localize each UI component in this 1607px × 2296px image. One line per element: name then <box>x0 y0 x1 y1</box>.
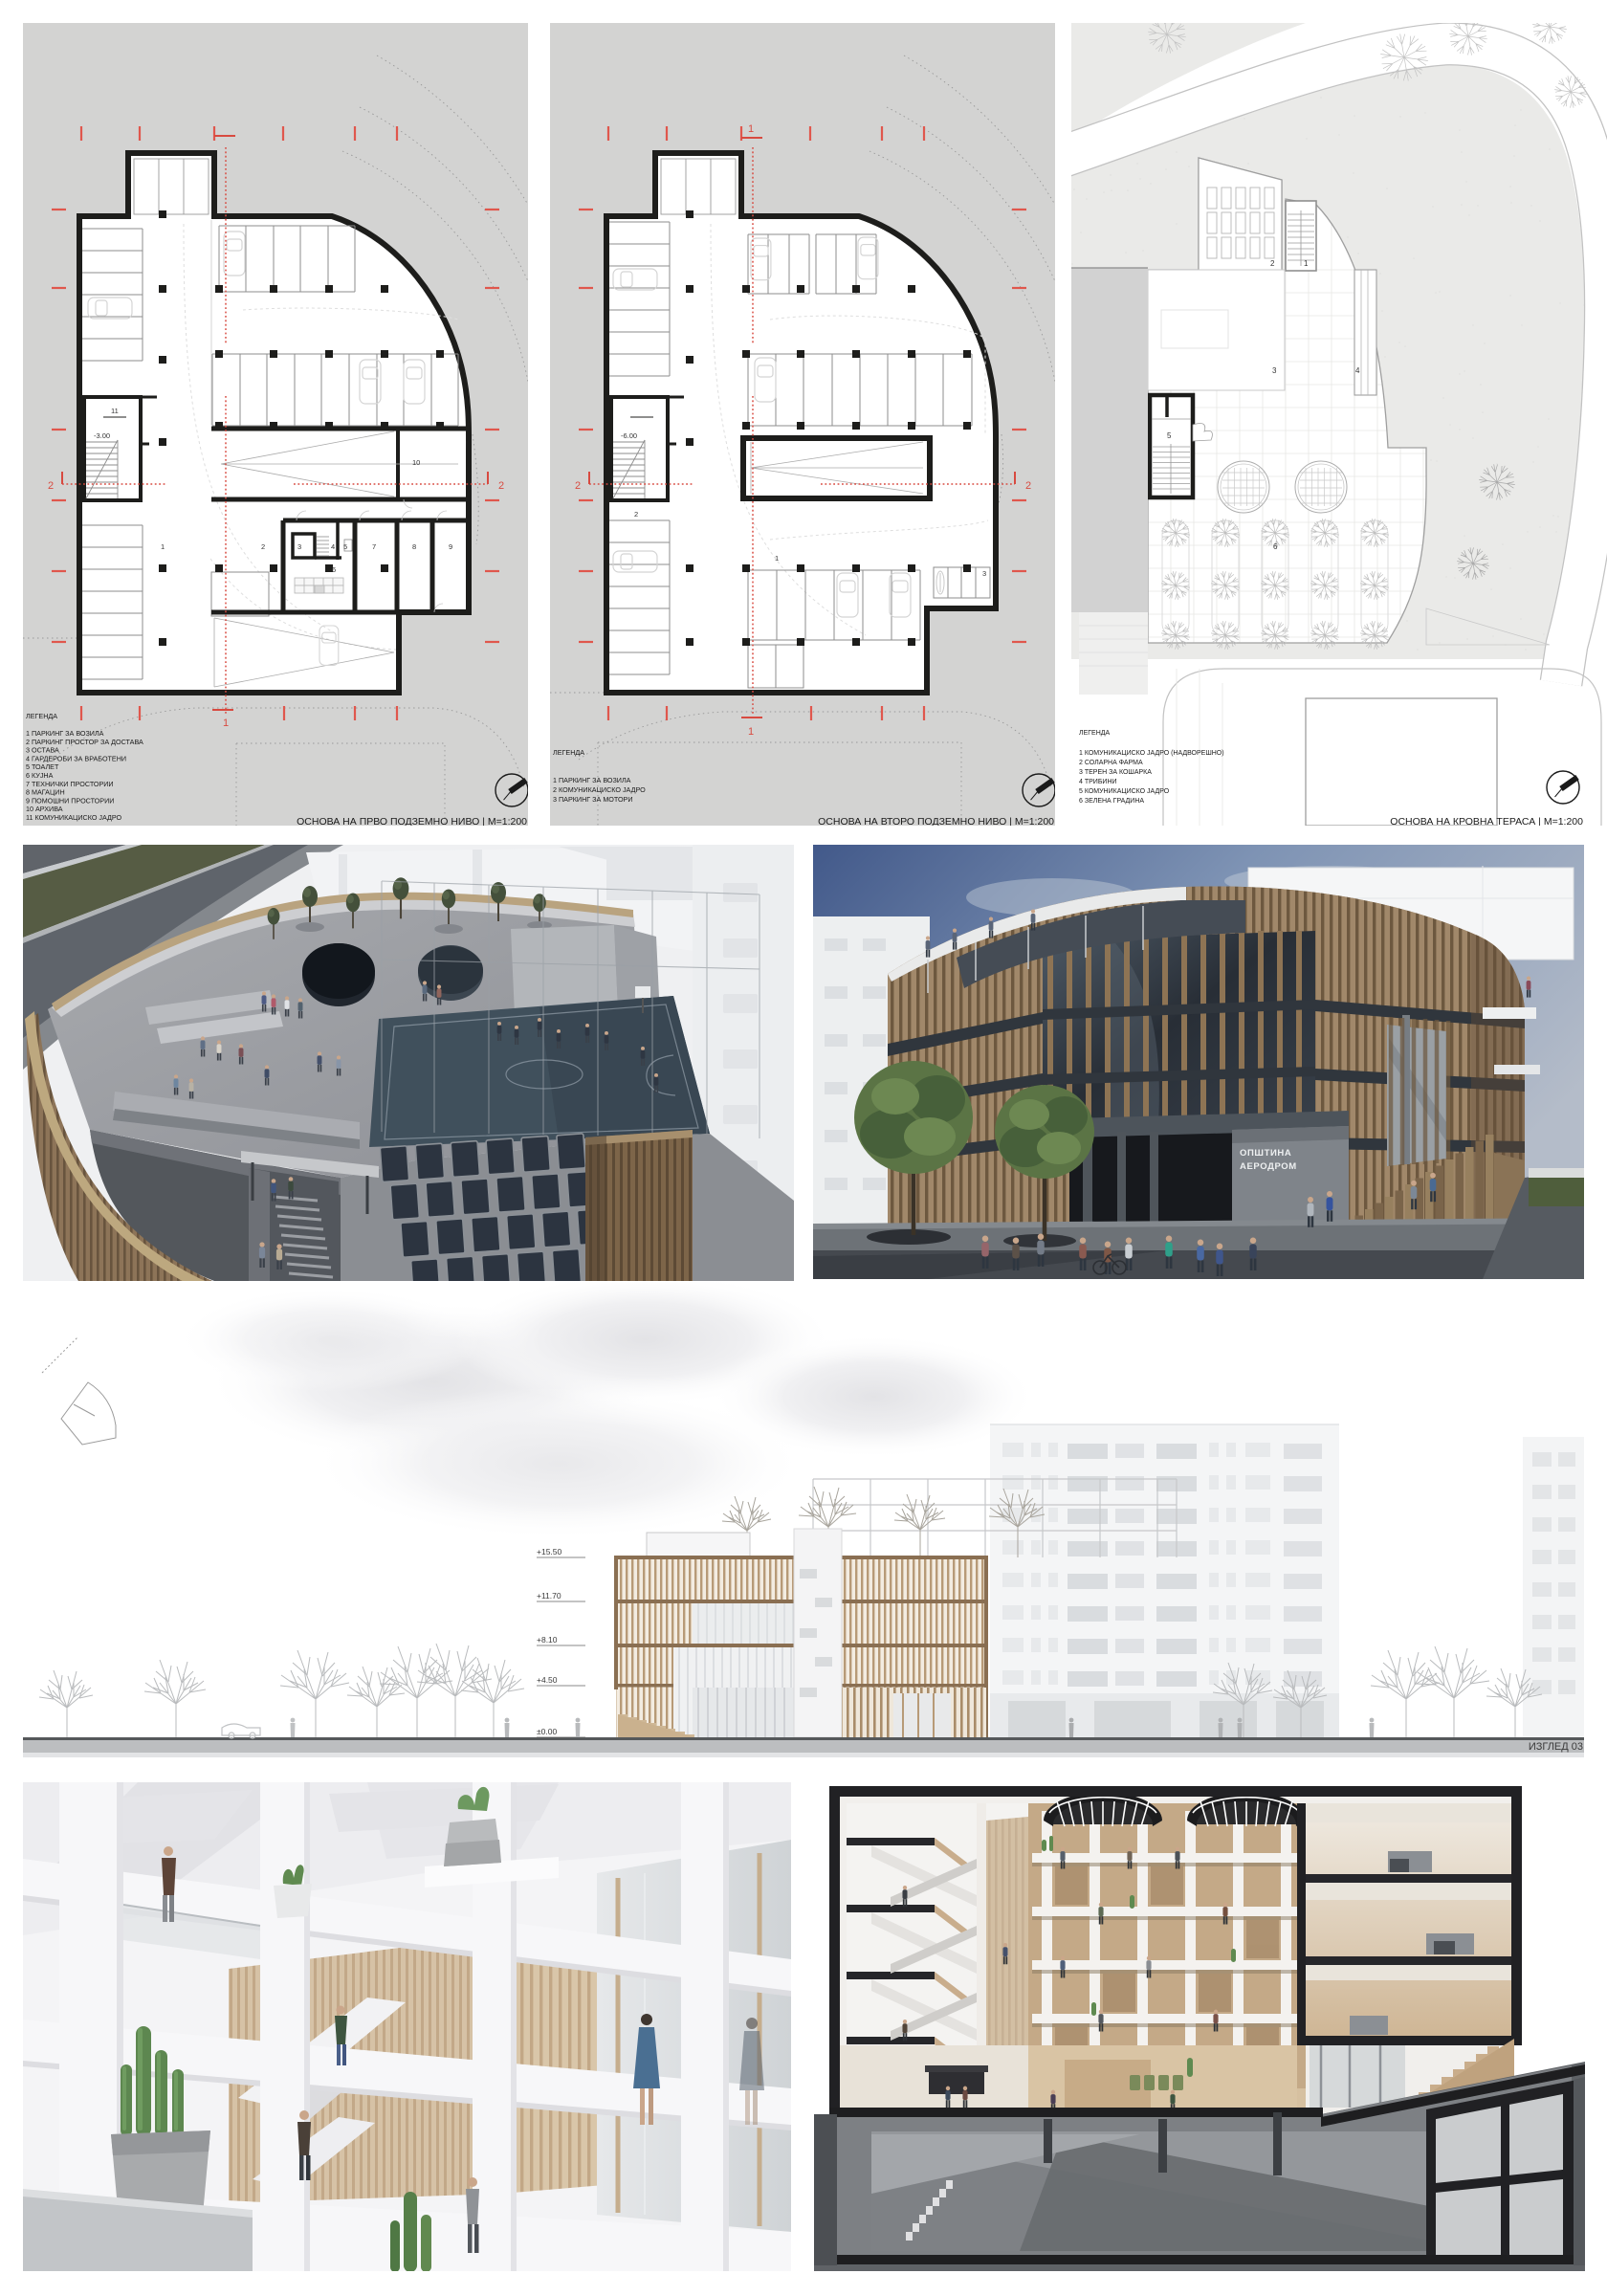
svg-text:1: 1 <box>748 123 754 135</box>
svg-text:3: 3 <box>982 569 986 578</box>
svg-text:4: 4 <box>1355 366 1360 375</box>
svg-text:2: 2 <box>575 480 581 492</box>
svg-text:6 ЗЕЛЕНА ГРАДИНА: 6 ЗЕЛЕНА ГРАДИНА <box>1079 798 1144 805</box>
svg-text:+4.50: +4.50 <box>537 1675 558 1685</box>
svg-text:8: 8 <box>412 542 416 551</box>
svg-text:ОПШТИНА: ОПШТИНА <box>1240 1148 1291 1159</box>
svg-text:2: 2 <box>498 480 504 492</box>
svg-text:ОСНОВА НА ПРВО ПОДЗЕМНО НИВО |: ОСНОВА НА ПРВО ПОДЗЕМНО НИВО | М=1:200 <box>297 816 527 826</box>
svg-text:2 КОМУНИКАЦИСКО ЈАДРО: 2 КОМУНИКАЦИСКО ЈАДРО <box>553 785 646 794</box>
svg-text:-3.00: -3.00 <box>94 431 110 440</box>
svg-text:-6.00: -6.00 <box>621 431 637 440</box>
svg-text:3: 3 <box>297 542 301 551</box>
svg-text:5: 5 <box>1167 431 1172 440</box>
svg-text:+11.70: +11.70 <box>537 1591 561 1601</box>
svg-text:1 КОМУНИКАЦИСКО ЈАДРО (НАДВОРЕ: 1 КОМУНИКАЦИСКО ЈАДРО (НАДВОРЕШНО) <box>1079 750 1224 757</box>
svg-text:3 ПАРКИНГ ЗА МОТОРИ: 3 ПАРКИНГ ЗА МОТОРИ <box>553 795 633 804</box>
svg-text:10: 10 <box>412 458 420 467</box>
svg-text:2: 2 <box>1025 480 1031 492</box>
svg-text:5 ТОАЛЕТ: 5 ТОАЛЕТ <box>26 762 59 771</box>
svg-text:7 ТЕХНИЧКИ ПРОСТОРИИ: 7 ТЕХНИЧКИ ПРОСТОРИИ <box>26 780 114 788</box>
svg-text:6: 6 <box>332 565 336 574</box>
svg-text:1: 1 <box>748 726 754 738</box>
svg-text:2 ПАРКИНГ ПРОСТОР ЗА ДОСТАВА: 2 ПАРКИНГ ПРОСТОР ЗА ДОСТАВА <box>26 738 143 746</box>
svg-text:6 КУЈНА: 6 КУЈНА <box>26 771 54 780</box>
svg-text:4 ТРИБИНИ: 4 ТРИБИНИ <box>1079 779 1117 785</box>
svg-text:ОСНОВА НА КРОВНА ТЕРАСА | М=1:: ОСНОВА НА КРОВНА ТЕРАСА | М=1:200 <box>1390 816 1583 826</box>
svg-text:1: 1 <box>775 554 779 563</box>
svg-text:2: 2 <box>48 480 54 492</box>
svg-text:5: 5 <box>343 542 347 551</box>
svg-text:±0.00: ±0.00 <box>537 1727 557 1736</box>
svg-text:9: 9 <box>449 542 452 551</box>
svg-text:8 МАГАЦИН: 8 МАГАЦИН <box>26 788 65 797</box>
svg-text:4: 4 <box>331 542 335 551</box>
svg-text:2: 2 <box>634 510 638 519</box>
svg-text:10 АРХИВА: 10 АРХИВА <box>26 805 63 813</box>
svg-text:4 ГАРДЕРОБИ ЗА ВРАБОТЕНИ: 4 ГАРДЕРОБИ ЗА ВРАБОТЕНИ <box>26 754 126 762</box>
svg-text:3 ТЕРЕН ЗА КОШАРКА: 3 ТЕРЕН ЗА КОШАРКА <box>1079 769 1152 776</box>
svg-text:5 КОМУНИКАЦИСКО ЈАДРО: 5 КОМУНИКАЦИСКО ЈАДРО <box>1079 788 1170 795</box>
svg-text:2 СОЛАРНА ФАРМА: 2 СОЛАРНА ФАРМА <box>1079 760 1143 766</box>
svg-text:ЛЕГЕНДА: ЛЕГЕНДА <box>26 712 57 720</box>
svg-text:1: 1 <box>223 717 229 729</box>
svg-text:1: 1 <box>161 542 165 551</box>
svg-text:2: 2 <box>1270 259 1275 268</box>
svg-text:1: 1 <box>1304 259 1309 268</box>
svg-text:1 ПАРКИНГ ЗА ВОЗИЛА: 1 ПАРКИНГ ЗА ВОЗИЛА <box>26 729 104 738</box>
svg-text:+15.50: +15.50 <box>537 1547 562 1556</box>
svg-text:6: 6 <box>1273 542 1278 551</box>
svg-text:ИЗГЛЕД 03: ИЗГЛЕД 03 <box>1529 1741 1583 1753</box>
svg-text:АЕРОДРОМ: АЕРОДРОМ <box>1240 1161 1297 1172</box>
svg-text:11: 11 <box>111 407 119 415</box>
svg-text:3 ОСТАВА: 3 ОСТАВА <box>26 746 59 755</box>
svg-text:3: 3 <box>1272 366 1277 375</box>
svg-text:1 ПАРКИНГ ЗА ВОЗИЛА: 1 ПАРКИНГ ЗА ВОЗИЛА <box>553 776 631 784</box>
svg-text:ЛЕГЕНДА: ЛЕГЕНДА <box>553 748 584 757</box>
svg-text:ОСНОВА НА ВТОРО ПОДЗЕМНО НИВО: ОСНОВА НА ВТОРО ПОДЗЕМНО НИВО | М=1:200 <box>818 816 1054 826</box>
svg-text:+8.10: +8.10 <box>537 1635 558 1645</box>
svg-text:11 КОМУНИКАЦИСКО ЈАДРО: 11 КОМУНИКАЦИСКО ЈАДРО <box>26 813 122 822</box>
svg-text:ЛЕГЕНДА: ЛЕГЕНДА <box>1079 730 1111 737</box>
svg-text:9 ПОМОШНИ ПРОСТОРИИ: 9 ПОМОШНИ ПРОСТОРИИ <box>26 796 114 805</box>
svg-text:2: 2 <box>261 542 265 551</box>
svg-text:7: 7 <box>372 542 376 551</box>
